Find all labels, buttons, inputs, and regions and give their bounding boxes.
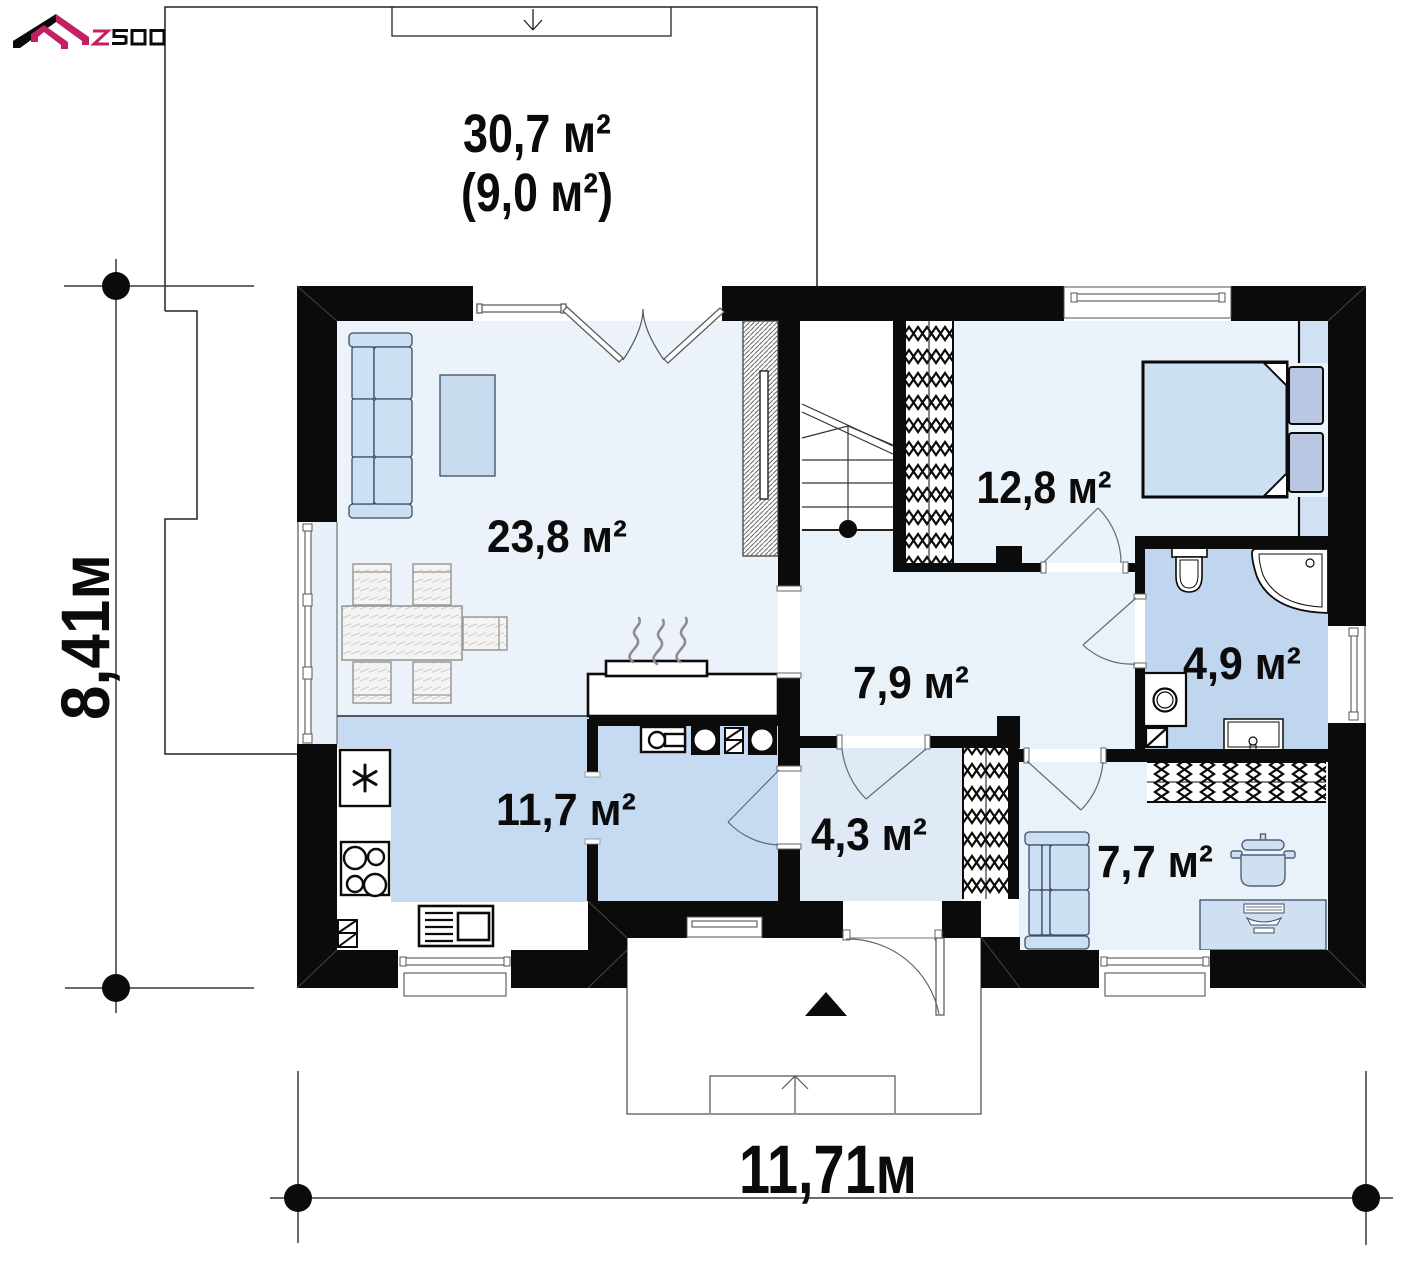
svg-text:7,9 м²: 7,9 м² — [853, 657, 969, 708]
svg-text:4,9 м²: 4,9 м² — [1183, 638, 1301, 689]
svg-text:7,7 м²: 7,7 м² — [1097, 836, 1213, 887]
svg-text:30,7 м²: 30,7 м² — [463, 104, 611, 164]
svg-text:23,8 м²: 23,8 м² — [487, 511, 627, 562]
svg-text:11,7 м²: 11,7 м² — [496, 784, 636, 835]
svg-text:4,3 м²: 4,3 м² — [811, 809, 927, 860]
svg-text:12,8 м²: 12,8 м² — [977, 462, 1112, 513]
svg-text:8,41м: 8,41м — [47, 554, 124, 720]
svg-text:11,71м: 11,71м — [739, 1131, 917, 1208]
svg-text:(9,0 м²): (9,0 м²) — [461, 163, 613, 223]
